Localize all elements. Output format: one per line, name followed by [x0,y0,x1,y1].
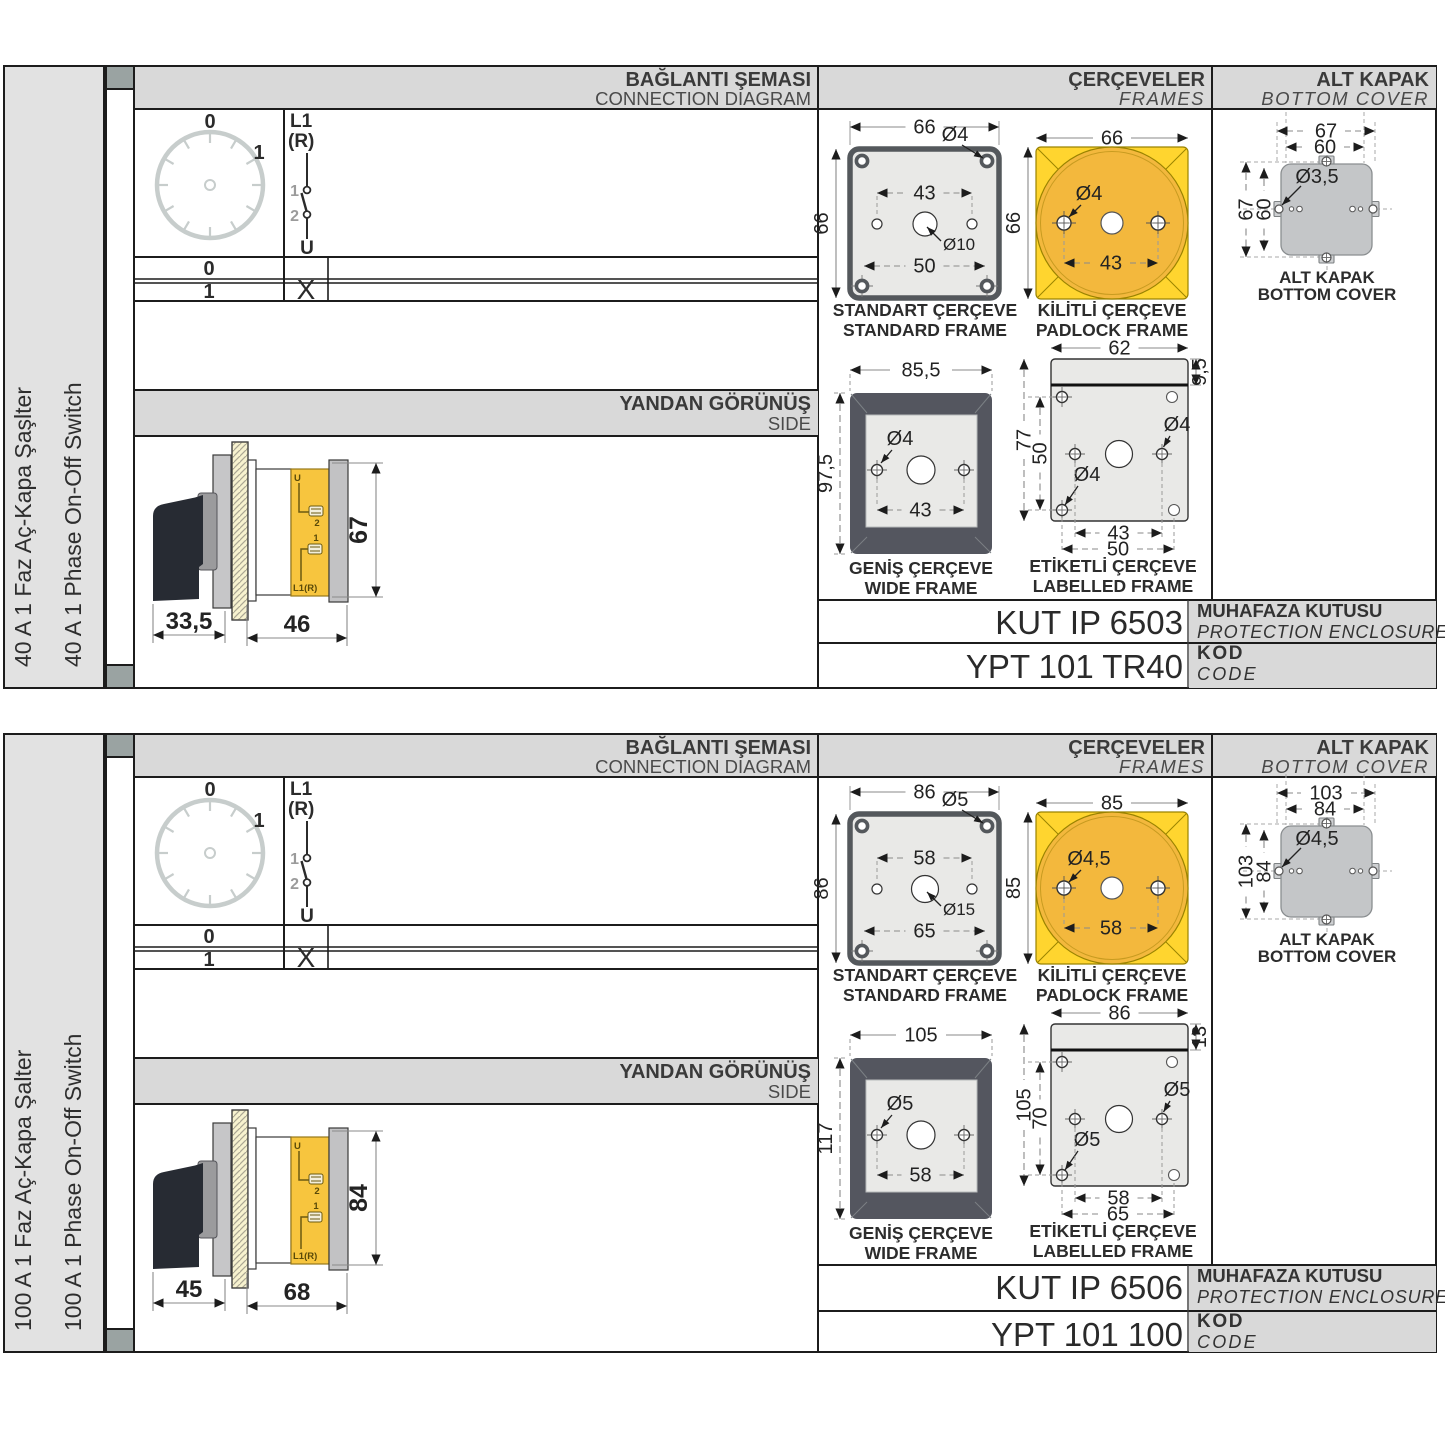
svg-text:ETİKETLİ ÇERÇEVE: ETİKETLİ ÇERÇEVE [1029,1221,1196,1241]
svg-text:Ø10: Ø10 [943,235,975,254]
svg-text:BOTTOM COVER: BOTTOM COVER [1261,88,1429,109]
svg-text:MUHAFAZA KUTUSU: MUHAFAZA KUTUSU [1197,1265,1382,1286]
svg-text:U: U [300,906,314,927]
svg-text:40 A 1 Phase On-Off Switch: 40 A 1 Phase On-Off Switch [60,382,86,667]
svg-text:U: U [294,1141,301,1152]
svg-text:X: X [297,274,316,305]
svg-text:CODE: CODE [1197,664,1258,684]
svg-text:STANDART ÇERÇEVE: STANDART ÇERÇEVE [833,300,1017,320]
svg-text:Ø5: Ø5 [1164,1079,1191,1101]
svg-text:2: 2 [290,876,299,893]
svg-text:45: 45 [176,1276,203,1303]
svg-text:2: 2 [314,518,319,529]
svg-text:68: 68 [284,1279,311,1306]
svg-text:33,5: 33,5 [166,608,213,635]
svg-text:(R): (R) [288,131,314,152]
svg-text:50: 50 [1030,442,1052,464]
svg-text:84: 84 [345,1184,373,1212]
svg-text:97,5: 97,5 [815,454,837,493]
svg-text:86: 86 [913,782,935,804]
svg-text:46: 46 [284,611,311,638]
svg-text:Ø4,5: Ø4,5 [1295,828,1338,850]
svg-text:L1(R): L1(R) [293,583,317,594]
svg-text:KUT IP 6503: KUT IP 6503 [995,604,1183,641]
svg-text:U: U [294,473,301,484]
svg-text:84: 84 [1314,799,1336,821]
svg-text:43: 43 [909,500,931,522]
svg-text:CONNECTION DIAGRAM: CONNECTION DIAGRAM [595,756,811,777]
svg-text:62: 62 [1108,338,1130,360]
svg-text:0: 0 [203,258,214,280]
svg-text:KOD: KOD [1197,1311,1244,1332]
svg-text:BOTTOM COVER: BOTTOM COVER [1258,285,1397,304]
svg-text:KİLİTLİ ÇERÇEVE: KİLİTLİ ÇERÇEVE [1038,965,1187,985]
svg-text:Ø4: Ø4 [887,428,914,450]
svg-text:60: 60 [1314,137,1336,159]
svg-text:86: 86 [1108,1003,1130,1025]
svg-text:58: 58 [913,848,935,870]
svg-text:117: 117 [815,1123,837,1155]
svg-text:0: 0 [203,926,214,948]
svg-text:66: 66 [1003,212,1025,234]
svg-text:CONNECTION DIAGRAM: CONNECTION DIAGRAM [595,88,811,109]
svg-text:L1: L1 [290,779,313,800]
svg-text:0: 0 [204,111,215,133]
svg-text:2: 2 [314,1186,319,1197]
svg-text:9,5: 9,5 [1189,358,1211,386]
svg-text:1: 1 [253,810,264,832]
svg-text:U: U [300,238,314,259]
svg-text:66: 66 [913,117,935,139]
svg-text:Ø4: Ø4 [1164,414,1191,436]
svg-text:YPT 101 TR40: YPT 101 TR40 [966,648,1183,685]
svg-text:13: 13 [1189,1026,1211,1048]
svg-text:66: 66 [1101,128,1123,150]
svg-text:GENİŞ ÇERÇEVE: GENİŞ ÇERÇEVE [849,558,993,578]
svg-text:Ø4: Ø4 [1076,183,1103,205]
svg-text:BOTTOM COVER: BOTTOM COVER [1258,947,1397,966]
svg-text:X: X [297,942,316,973]
svg-text:Ø3,5: Ø3,5 [1295,166,1338,188]
svg-text:FRAMES: FRAMES [1119,756,1205,777]
svg-text:1: 1 [203,281,214,303]
svg-text:SIDE: SIDE [768,1081,811,1102]
svg-text:KİLİTLİ ÇERÇEVE: KİLİTLİ ÇERÇEVE [1038,300,1187,320]
svg-text:CODE: CODE [1197,1332,1258,1352]
svg-text:2: 2 [290,208,299,225]
svg-text:KUT IP 6506: KUT IP 6506 [995,1269,1183,1306]
svg-text:1: 1 [253,142,264,164]
svg-text:KOD: KOD [1197,643,1244,664]
svg-text:0: 0 [204,779,215,801]
svg-text:ETİKETLİ ÇERÇEVE: ETİKETLİ ÇERÇEVE [1029,556,1196,576]
svg-text:70: 70 [1030,1107,1052,1129]
svg-text:L1(R): L1(R) [293,1251,317,1262]
svg-text:WIDE FRAME: WIDE FRAME [865,578,978,598]
svg-text:STANDARD FRAME: STANDARD FRAME [843,985,1007,1005]
svg-text:85: 85 [1101,793,1123,815]
svg-text:1: 1 [290,851,299,868]
svg-text:LABELLED FRAME: LABELLED FRAME [1033,1241,1193,1261]
svg-text:MUHAFAZA KUTUSU: MUHAFAZA KUTUSU [1197,600,1382,621]
svg-text:67: 67 [345,516,373,544]
svg-text:Ø15: Ø15 [943,900,975,919]
svg-text:43: 43 [913,183,935,205]
svg-text:40 A 1 Faz Aç-Kapa Şaşlter: 40 A 1 Faz Aç-Kapa Şaşlter [10,387,36,667]
svg-text:L1: L1 [290,111,313,132]
svg-text:60: 60 [1254,198,1276,220]
svg-text:86: 86 [811,877,833,899]
svg-text:50: 50 [913,256,935,278]
svg-text:43: 43 [1100,253,1122,275]
svg-text:1: 1 [203,949,214,971]
svg-text:84: 84 [1254,860,1276,882]
svg-text:LABELLED FRAME: LABELLED FRAME [1033,576,1193,596]
svg-text:PROTECTION ENCLOSURE: PROTECTION ENCLOSURE [1197,1287,1445,1307]
svg-text:Ø4: Ø4 [1074,464,1101,486]
svg-text:FRAMES: FRAMES [1119,88,1205,109]
svg-text:85: 85 [1003,877,1025,899]
svg-text:Ø5: Ø5 [942,789,969,811]
svg-text:Ø5: Ø5 [1074,1129,1101,1151]
svg-text:YANDAN GÖRÜNÜŞ: YANDAN GÖRÜNÜŞ [619,1060,811,1083]
svg-text:YANDAN GÖRÜNÜŞ: YANDAN GÖRÜNÜŞ [619,392,811,415]
svg-text:(R): (R) [288,799,314,820]
svg-text:PROTECTION ENCLOSURE: PROTECTION ENCLOSURE [1197,622,1445,642]
svg-text:Ø5: Ø5 [887,1093,914,1115]
svg-text:1: 1 [313,533,319,544]
svg-text:100 A 1 Faz Aç-Kapa Şalter: 100 A 1 Faz Aç-Kapa Şalter [10,1049,36,1331]
svg-text:85,5: 85,5 [902,360,941,382]
svg-text:Ø4: Ø4 [942,124,969,146]
svg-text:1: 1 [290,183,299,200]
svg-text:58: 58 [1100,918,1122,940]
svg-text:105: 105 [904,1025,937,1047]
svg-text:66: 66 [811,212,833,234]
svg-text:SIDE: SIDE [768,413,811,434]
svg-text:100 A 1 Phase On-Off Switch: 100 A 1 Phase On-Off Switch [60,1034,86,1331]
svg-text:65: 65 [913,921,935,943]
svg-text:GENİŞ ÇERÇEVE: GENİŞ ÇERÇEVE [849,1223,993,1243]
svg-text:Ø4,5: Ø4,5 [1067,848,1110,870]
svg-text:1: 1 [313,1201,319,1212]
svg-text:BOTTOM COVER: BOTTOM COVER [1261,756,1429,777]
svg-text:58: 58 [909,1165,931,1187]
svg-text:STANDARD FRAME: STANDARD FRAME [843,320,1007,340]
svg-text:WIDE FRAME: WIDE FRAME [865,1243,978,1263]
svg-text:YPT 101 100: YPT 101 100 [991,1316,1183,1353]
svg-text:STANDART ÇERÇEVE: STANDART ÇERÇEVE [833,965,1017,985]
